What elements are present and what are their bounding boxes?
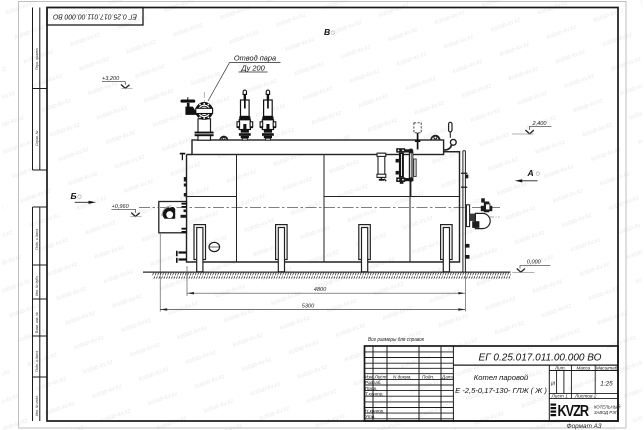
svg-text:Дата: Дата — [441, 374, 455, 379]
svg-text:Утв.: Утв. — [365, 414, 375, 419]
svg-text:Т.контр.: Т.контр. — [365, 392, 384, 397]
svg-text:Масса: Масса — [577, 366, 591, 371]
svg-text:Формат А3: Формат А3 — [567, 423, 602, 430]
svg-text:Разраб.: Разраб. — [365, 380, 382, 385]
svg-text:KVZR: KVZR — [558, 403, 589, 420]
svg-text:Все размеры для справок: Все размеры для справок — [368, 337, 424, 343]
svg-text:Инв. № дубл.: Инв. № дубл. — [35, 275, 39, 296]
svg-text:+3,200: +3,200 — [102, 76, 120, 82]
svg-text:Подп. и дата: Подп. и дата — [35, 229, 39, 250]
svg-text:Лист 1: Лист 1 — [551, 394, 569, 400]
svg-text:Пров.: Пров. — [365, 386, 377, 391]
svg-text:А: А — [527, 168, 534, 178]
svg-text:Листов 2: Листов 2 — [574, 394, 597, 400]
svg-text:Справ. №: Справ. № — [35, 130, 39, 146]
svg-text:Подп. и дата: Подп. и дата — [35, 351, 39, 372]
svg-text:1:25: 1:25 — [600, 381, 613, 388]
svg-text:4800: 4800 — [314, 287, 327, 293]
svg-text:Н.контр.: Н.контр. — [365, 408, 384, 413]
svg-text:Е -2,5-0,17-130- ГЛЖ ( Ж ): Е -2,5-0,17-130- ГЛЖ ( Ж ) — [455, 386, 547, 395]
svg-text:Инв. № подл.: Инв. № подл. — [35, 395, 39, 416]
svg-text:Отвод пара: Отвод пара — [234, 54, 276, 63]
svg-text:Масштаб: Масштаб — [596, 366, 618, 371]
svg-text:ЕГ 0.25.017.011.00.000 ВО: ЕГ 0.25.017.011.00.000 ВО — [479, 352, 602, 363]
svg-text:Б: Б — [71, 191, 77, 201]
svg-text:0,000: 0,000 — [527, 259, 542, 265]
svg-text:ЕГ 0.25.017.011.00.000 ВО: ЕГ 0.25.017.011.00.000 ВО — [53, 12, 137, 21]
svg-text:ЗАВОД РЭП: ЗАВОД РЭП — [594, 410, 619, 415]
svg-text:5300: 5300 — [302, 303, 315, 309]
svg-text:Ду 200: Ду 200 — [240, 63, 265, 72]
svg-text:Перв. примен.: Перв. примен. — [35, 47, 39, 70]
svg-text:Подп.: Подп. — [422, 374, 434, 379]
svg-text:Изм.Лист: Изм.Лист — [365, 374, 387, 379]
svg-text:+0,960: +0,960 — [112, 204, 130, 210]
svg-text:N докум.: N докум. — [393, 374, 412, 379]
svg-text:И: И — [551, 382, 555, 388]
svg-text:Лит.: Лит. — [554, 366, 566, 371]
svg-text:Взам. инв. №: Взам. инв. № — [35, 312, 39, 333]
svg-text:Котел паровой: Котел паровой — [474, 373, 529, 382]
svg-text:В: В — [324, 27, 330, 37]
svg-text:КОТЕЛЬНЫЙ: КОТЕЛЬНЫЙ — [594, 405, 620, 410]
